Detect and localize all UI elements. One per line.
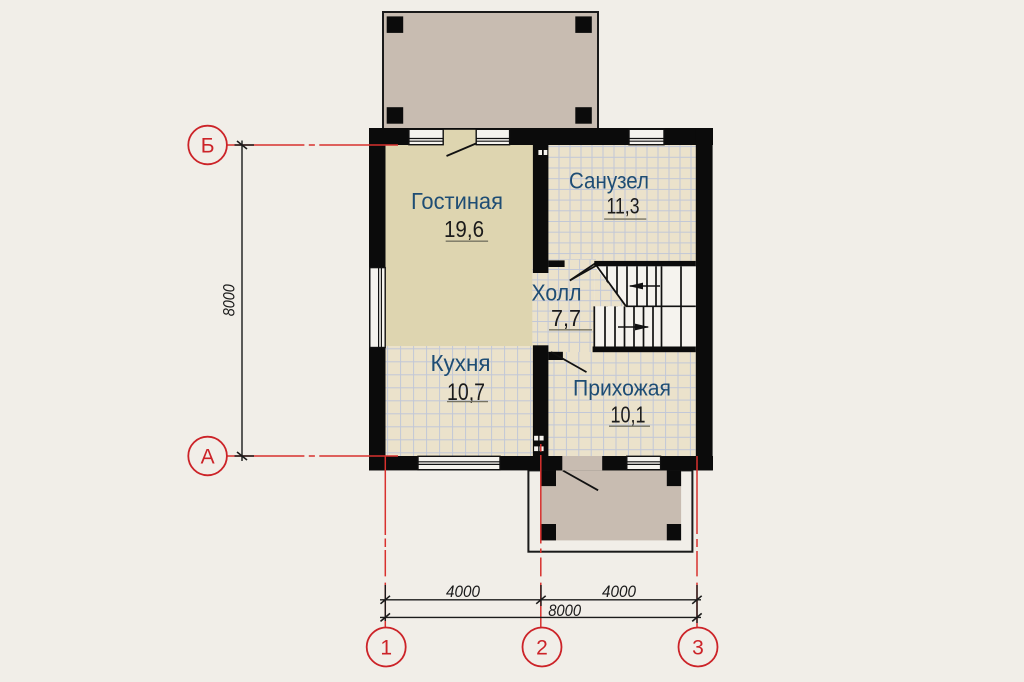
svg-text:3: 3 [692, 637, 704, 660]
svg-text:8000: 8000 [220, 284, 239, 316]
svg-text:4000: 4000 [446, 582, 480, 601]
svg-text:4000: 4000 [602, 582, 636, 601]
svg-text:Б: Б [201, 135, 215, 158]
svg-text:2: 2 [536, 637, 548, 660]
svg-text:Кухня: Кухня [431, 350, 491, 376]
svg-text:1: 1 [380, 637, 392, 660]
svg-text:19,6: 19,6 [444, 216, 484, 242]
svg-text:А: А [201, 446, 215, 469]
svg-text:11,3: 11,3 [607, 194, 640, 219]
svg-text:Холл: Холл [532, 280, 582, 306]
svg-text:7,7: 7,7 [551, 305, 581, 331]
svg-text:Прихожая: Прихожая [573, 376, 671, 401]
svg-text:10,1: 10,1 [611, 402, 646, 428]
svg-text:Гостиная: Гостиная [411, 188, 503, 214]
svg-text:Санузел: Санузел [569, 168, 649, 194]
svg-text:8000: 8000 [548, 601, 581, 620]
